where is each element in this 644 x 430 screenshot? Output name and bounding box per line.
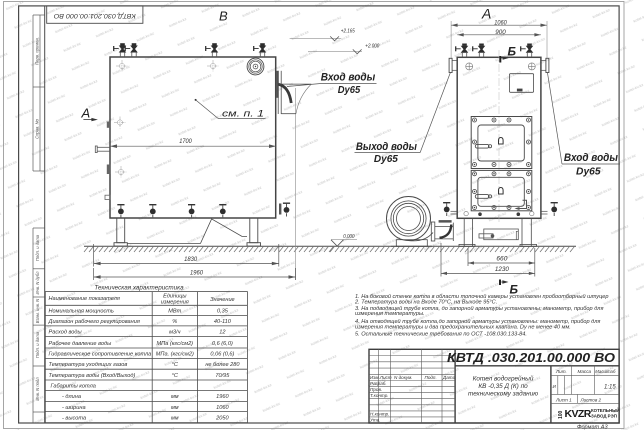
svg-text:МПа (кгс/см2): МПа (кгс/см2) [157, 341, 194, 347]
svg-text:техническому заданию: техническому заданию [468, 389, 538, 397]
svg-text:Котел водогрейный: Котел водогрейный [473, 375, 534, 383]
svg-text:°С: °С [172, 362, 179, 368]
svg-text:Б: Б [508, 45, 517, 59]
svg-text:Dy65: Dy65 [576, 166, 601, 178]
svg-text:мм: мм [171, 416, 179, 422]
svg-text:Рабочее давление воды: Рабочее давление воды [49, 341, 112, 347]
svg-text:см. п. 1: см. п. 1 [222, 108, 264, 119]
svg-text:0,6 (6,0): 0,6 (6,0) [212, 341, 233, 347]
svg-text:KVZR: KVZR [565, 408, 592, 420]
svg-text:1060: 1060 [216, 405, 229, 411]
svg-text:N докум.: N докум. [394, 375, 413, 380]
svg-text:- длина: - длина [62, 394, 81, 400]
svg-text:2050: 2050 [215, 416, 229, 422]
svg-text:МПа. (кгс/см2): МПа. (кгс/см2) [156, 352, 194, 358]
svg-text:1060: 1060 [494, 19, 507, 26]
svg-text:Номинальная мощность: Номинальная мощность [49, 309, 114, 315]
svg-text:1830: 1830 [184, 256, 197, 263]
svg-text:12: 12 [219, 330, 226, 336]
svg-text:1960: 1960 [216, 394, 229, 400]
svg-text:Пров.: Пров. [370, 387, 382, 392]
svg-text:1700: 1700 [179, 138, 192, 145]
svg-text:%: % [172, 319, 177, 325]
svg-text:КВ -0,35 Д (К) по: КВ -0,35 Д (К) по [478, 383, 528, 390]
svg-text:мм: мм [171, 394, 179, 400]
svg-text:Температура уходящих газов: Температура уходящих газов [49, 362, 128, 368]
svg-text:Т.контр.: Т.контр. [370, 393, 389, 398]
svg-text:Dy65: Dy65 [374, 153, 398, 165]
svg-text:Вход воды: Вход воды [321, 72, 376, 84]
svg-text:не более 280: не более 280 [205, 362, 240, 368]
svg-text:1960: 1960 [190, 270, 203, 277]
svg-text:Подп. и дата: Подп. и дата [35, 234, 40, 261]
svg-text:660: 660 [496, 255, 507, 262]
svg-text:- высота: - высота [62, 416, 86, 422]
svg-text:Расход воды: Расход воды [49, 330, 82, 336]
svg-text:мм: мм [171, 405, 179, 411]
svg-text:МВт: МВт [168, 309, 181, 315]
svg-text:Габариты котла: Габариты котла [51, 383, 96, 389]
svg-text:Взам. инв. N: Взам. инв. N [35, 298, 40, 323]
svg-text:0.000: 0.000 [343, 234, 355, 240]
svg-text:Дата: Дата [442, 375, 456, 380]
svg-text:В: В [219, 8, 228, 23]
svg-text:2. Температура воды на Входе: 2. Температура воды на Входе 70°С, на Вы… [354, 300, 497, 306]
svg-text:Лит.: Лит. [555, 369, 567, 374]
svg-text:1:15: 1:15 [604, 385, 616, 391]
svg-text:КВТД.030.201.00.000 ВО: КВТД.030.201.00.000 ВО [54, 12, 136, 19]
svg-text:Справ. No: Справ. No [35, 118, 40, 139]
svg-text:Масштаб: Масштаб [595, 369, 616, 374]
svg-text:Dy65: Dy65 [338, 84, 361, 96]
svg-text:м3/ч: м3/ч [169, 330, 180, 336]
svg-text:Перв. примен.: Перв. примен. [35, 37, 40, 65]
svg-text:+2.000: +2.000 [365, 43, 380, 49]
svg-text:измерения температуры.: измерения температуры. [355, 311, 425, 317]
svg-text:Диапазон рабочего регулировани: Диапазон рабочего регулирования [48, 319, 140, 325]
svg-text:Инв. N подл: Инв. N подл [35, 377, 40, 401]
svg-text:измерения: измерения [161, 300, 189, 306]
svg-text:А: А [81, 106, 91, 121]
svg-text:Гидравлическое сопротивление к: Гидравлическое сопротивление котла [49, 352, 152, 358]
svg-text:измерения температуры и два пр: измерения температуры и два предохраните… [355, 325, 571, 331]
svg-text:40-110: 40-110 [214, 319, 232, 325]
svg-text:Значение: Значение [210, 297, 235, 303]
svg-text:0,06 (0,6): 0,06 (0,6) [210, 352, 234, 358]
svg-text:Вход воды: Вход воды [564, 152, 619, 164]
svg-text:Формат А3: Формат А3 [577, 424, 608, 430]
svg-text:70/95: 70/95 [215, 373, 230, 379]
svg-text:Н.контр.: Н.контр. [370, 411, 389, 416]
svg-text:КВТД .030.201.00.000 ВО: КВТД .030.201.00.000 ВО [447, 351, 615, 365]
svg-text:Наименование показателя: Наименование показателя [49, 296, 120, 302]
svg-text:ЗАВОД РЭП: ЗАВОД РЭП [591, 413, 617, 418]
svg-text:5. Остальные технические треб: 5. Остальные технические требования по О… [355, 331, 527, 337]
svg-text:+2.165: +2.165 [341, 29, 356, 35]
svg-text:- ширина: - ширина [62, 405, 86, 411]
svg-text:Листов 2: Листов 2 [580, 398, 602, 403]
svg-text:Подп. и дата: Подп. и дата [35, 331, 40, 358]
svg-text:Лист 1: Лист 1 [555, 398, 572, 403]
svg-text:0,35: 0,35 [217, 309, 229, 315]
svg-text:Масса: Масса [578, 369, 592, 374]
svg-text:100: 100 [558, 410, 564, 419]
svg-text:°С: °С [172, 373, 179, 379]
svg-text:Температура воды (Вход/Выход): Температура воды (Вход/Выход) [49, 373, 136, 379]
svg-text:900: 900 [495, 29, 506, 36]
svg-text:Подп.: Подп. [425, 375, 437, 380]
svg-text:1230: 1230 [495, 266, 509, 273]
svg-text:Изм.Лист: Изм.Лист [370, 375, 392, 380]
svg-text:Техническая характеристика: Техническая характеристика [94, 284, 184, 291]
svg-text:Выход воды: Выход воды [356, 141, 418, 153]
svg-text:Утв.: Утв. [370, 417, 380, 422]
svg-text:Инв. N дубл: Инв. N дубл [35, 271, 40, 295]
svg-text:А: А [481, 6, 491, 22]
svg-text:Разраб.: Разраб. [370, 381, 387, 386]
svg-text:КОТЕЛЬНЫЙ: КОТЕЛЬНЫЙ [591, 408, 620, 413]
